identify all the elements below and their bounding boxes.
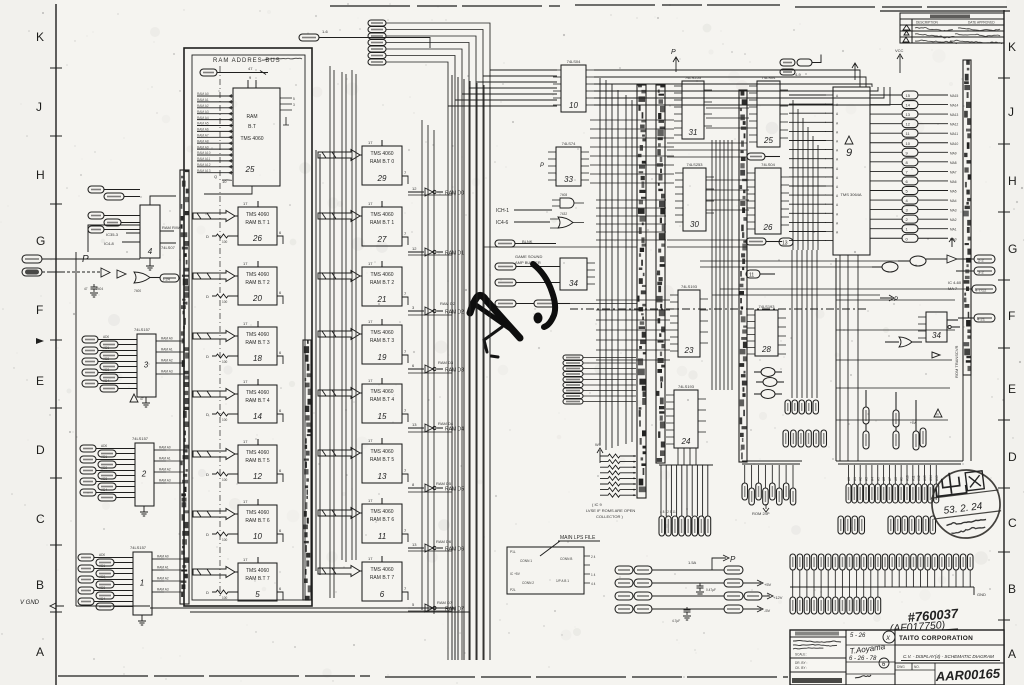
svg-text:ROM TRANSCVR: ROM TRANSCVR [954,346,959,378]
svg-text:1.5A: 1.5A [688,560,697,565]
svg-text:25: 25 [763,136,773,145]
svg-text:17: 17 [368,498,373,503]
svg-text:AD0: AD0 [103,335,109,339]
svg-text:A13: A13 [923,475,927,481]
svg-text:74LS04: 74LS04 [567,59,582,64]
svg-text:7400: 7400 [134,289,141,293]
svg-text:A9: A9 [900,477,904,481]
svg-text:AD4: AD4 [99,597,105,601]
svg-text:DR. BY :: DR. BY : [795,661,807,665]
svg-text:RAM A3: RAM A3 [159,479,171,483]
svg-text:V GND: V GND [20,600,40,606]
svg-text:A4: A4 [870,477,874,481]
svg-text:100: 100 [222,360,228,364]
svg-text:RAM D6: RAM D6 [436,539,452,544]
svg-text:MA12: MA12 [950,123,959,127]
svg-text:AD3: AD3 [101,477,107,481]
svg-text:10: 10 [253,532,262,541]
svg-text:1 4: 1 4 [591,573,596,577]
svg-text:RAM B.T 1: RAM B.T 1 [370,220,395,226]
svg-text:AD2: AD2 [99,575,105,579]
svg-text:TMS 3064A: TMS 3064A [840,192,861,197]
svg-text:RAM A1: RAM A1 [197,98,209,102]
svg-text:13: 13 [412,422,417,427]
svg-text:13: 13 [412,542,417,547]
svg-text:RAM B.T 0: RAM B.T 0 [370,159,395,165]
svg-text:47: 47 [84,287,88,291]
svg-text:Q: Q [214,174,217,179]
svg-text:+5V: +5V [910,421,917,425]
svg-text:14: 14 [253,412,262,421]
svg-text:17: 17 [243,379,248,384]
svg-text:TMS 4060: TMS 4060 [370,449,393,455]
svg-text:4.7µF: 4.7µF [672,619,680,623]
svg-text:CONN B: CONN B [560,557,572,561]
svg-text:B: B [36,578,44,592]
svg-text:1/P A B 1: 1/P A B 1 [556,579,569,583]
svg-text:3: 3 [144,361,149,370]
svg-text:RAM A13: RAM A13 [197,169,211,173]
svg-text:5: 5 [293,97,295,101]
svg-text:17: 17 [368,201,373,206]
svg-text:17: 17 [243,499,248,504]
svg-text:TMS 4060: TMS 4060 [370,151,393,157]
svg-text:RAM R/W: RAM R/W [162,225,180,230]
svg-text:DATE APPROVED: DATE APPROVED [968,21,995,25]
svg-text:K: K [36,30,44,44]
svg-text:TMS 4060: TMS 4060 [370,330,393,336]
svg-text:27: 27 [377,235,387,244]
svg-text:TMS 4060: TMS 4060 [246,212,269,218]
svg-text:2: 2 [141,470,147,479]
svg-text:RAM A0: RAM A0 [197,92,209,96]
svg-text:RAM A4: RAM A4 [197,116,209,120]
svg-text:12: 12 [906,122,911,127]
svg-text:26: 26 [252,234,262,243]
svg-text:ICH-1: ICH-1 [496,208,509,214]
svg-text:D: D [206,354,209,359]
svg-text:1: 1 [140,579,144,588]
svg-text:RAM A3: RAM A3 [157,588,169,592]
svg-text:AD0: AD0 [99,553,105,557]
svg-text:1-6: 1-6 [322,29,329,34]
svg-text:D: D [36,443,45,457]
svg-text:13: 13 [378,472,387,481]
svg-text:+12V: +12V [773,595,783,600]
svg-text:AD1: AD1 [101,455,107,459]
svg-text:34: 34 [932,331,941,340]
svg-text:RAM A0: RAM A0 [161,337,173,341]
svg-text:RAM A2: RAM A2 [157,577,169,581]
svg-text:11: 11 [378,532,386,541]
svg-text:MA8: MA8 [950,161,957,165]
svg-text:2-2: 2-2 [978,258,985,263]
svg-text:m: m [936,413,939,417]
svg-text:RAM B.T 7: RAM B.T 7 [245,576,270,582]
svg-text:10: 10 [906,141,911,146]
svg-text:AD0: AD0 [101,444,107,448]
svg-text:TMS 4060: TMS 4060 [246,450,269,456]
svg-text:A3: A3 [865,477,869,481]
svg-text:AD4: AD4 [103,379,109,383]
svg-text:47: 47 [140,397,144,401]
svg-text:D: D [206,532,209,537]
svg-text:AD4: AD4 [101,488,107,492]
svg-text:TMS 4060: TMS 4060 [370,272,393,278]
svg-text:RAM A3: RAM A3 [197,110,209,114]
svg-text:RAM A5: RAM A5 [197,122,209,126]
svg-text:13: 13 [906,112,911,117]
svg-text:AD1: AD1 [99,564,105,568]
svg-text:A0: A0 [847,477,851,481]
svg-text:E: E [1008,382,1016,396]
svg-text:B: B [1008,582,1016,596]
svg-text:IC4-8: IC4-8 [104,241,115,246]
svg-text:20: 20 [252,294,262,303]
svg-text:VCC: VCC [895,48,904,53]
svg-text:24: 24 [681,437,691,446]
svg-text:74LS07: 74LS07 [161,245,176,250]
svg-text:RAM A3: RAM A3 [161,370,173,374]
svg-text:10: 10 [569,101,578,110]
svg-text:A8: A8 [894,477,898,481]
svg-text:RAM A2: RAM A2 [159,468,171,472]
svg-text:RAM A0: RAM A0 [159,446,171,450]
svg-text:17: 17 [243,439,248,444]
svg-text:C: C [1008,516,1017,530]
svg-text:17: 17 [243,201,248,206]
svg-text:D: D [206,294,209,299]
svg-text:COLLECTOR ): COLLECTOR ) [596,514,623,519]
svg-text:74LS157: 74LS157 [130,545,147,550]
svg-text:IC 4-60: IC 4-60 [948,280,962,285]
svg-text:33: 33 [564,175,573,184]
svg-text:RAM D2: RAM D2 [440,301,456,306]
svg-text:RAM B.T 2: RAM B.T 2 [245,280,270,286]
svg-text:IC4-6: IC4-6 [496,220,508,226]
svg-text:21: 21 [377,295,387,304]
svg-text:C.V. - DISPLAY(4) - SCHEMATIC: C.V. - DISPLAY(4) - SCHEMATIC DIAGRAM [903,654,994,659]
svg-text:RAM A10: RAM A10 [197,151,211,155]
svg-text:D: D [1008,450,1017,464]
svg-text:17: 17 [368,378,373,383]
svg-text:TMS 4060: TMS 4060 [370,389,393,395]
svg-text:74LS157: 74LS157 [132,436,149,441]
svg-text:74LS193: 74LS193 [758,304,775,309]
svg-text:17: 17 [368,438,373,443]
svg-text:TMS 4060: TMS 4060 [246,390,269,396]
svg-text:D: D [206,234,209,239]
svg-text:P: P [671,49,676,56]
svg-text:D: D [206,590,209,595]
svg-text:RAM D5: RAM D5 [436,481,452,486]
svg-text:AD3: AD3 [99,586,105,590]
svg-text:74LS04: 74LS04 [762,75,777,80]
svg-text:TAITO CORPORATION: TAITO CORPORATION [899,635,973,642]
svg-text:TMS 4060: TMS 4060 [370,509,393,515]
svg-text:13: 13 [782,241,788,247]
svg-text:-5V: -5V [764,608,771,613]
svg-text:RAM A0: RAM A0 [157,555,169,559]
svg-text:RAM A2: RAM A2 [161,359,173,363]
svg-text:DWG: DWG [897,665,905,669]
svg-text:17: 17 [368,140,373,145]
svg-text:RAM B.T 5: RAM B.T 5 [370,457,395,463]
svg-text:11: 11 [749,273,754,279]
svg-text:( IC 9: ( IC 9 [592,502,603,507]
svg-text:MA2: MA2 [950,218,957,222]
svg-text:4-9: 4-9 [795,72,802,77]
svg-text:5: 5 [255,590,260,599]
svg-text:IC35-3: IC35-3 [106,232,119,237]
svg-text:IC +5V: IC +5V [510,572,521,576]
svg-text:4 4: 4 4 [591,582,596,586]
svg-text:74LS157: 74LS157 [134,327,151,332]
svg-text:A7: A7 [888,477,892,481]
svg-text:31: 31 [689,128,698,137]
svg-text:100: 100 [222,240,228,244]
svg-text:7408: 7408 [560,193,567,197]
svg-text:CONN 1: CONN 1 [520,559,532,563]
svg-text:3: 3 [293,103,295,107]
svg-text:MA4: MA4 [950,199,957,203]
svg-text:A14: A14 [929,475,933,481]
svg-text:H: H [36,168,45,182]
svg-text:6 - 26 - 78: 6 - 26 - 78 [849,656,877,662]
svg-text:4: 4 [148,247,153,256]
svg-text:AD1: AD1 [103,346,109,350]
svg-text:17: 17 [368,261,373,266]
svg-text:MA 7: MA 7 [948,286,958,291]
svg-text:C: C [36,512,45,526]
svg-text:100: 100 [222,300,228,304]
svg-text:ROM 24P: ROM 24P [752,511,770,516]
svg-text:A10: A10 [906,475,910,481]
svg-text:K: K [1008,40,1016,54]
svg-text:CONN 2: CONN 2 [522,581,534,585]
svg-text:19: 19 [378,353,387,362]
svg-text:DESCRIPTION: DESCRIPTION [916,21,938,25]
svg-text:17: 17 [368,319,373,324]
svg-text:RAM A9: RAM A9 [197,145,209,149]
svg-text:MA6: MA6 [950,180,957,184]
svg-text:P: P [894,297,898,303]
svg-text:4 8 12 5 11: 4 8 12 5 11 [660,510,676,514]
svg-text:J: J [1008,105,1014,119]
svg-text:D: D [206,412,209,417]
svg-text:7432: 7432 [560,212,567,216]
svg-text:TMS 4060: TMS 4060 [246,568,269,574]
svg-text:TMS 4060: TMS 4060 [370,567,393,573]
svg-text:RAM A1: RAM A1 [159,457,171,461]
svg-text:100: 100 [222,478,228,482]
svg-text:A6: A6 [882,477,886,481]
svg-text:18: 18 [253,354,262,363]
svg-text:A12: A12 [917,475,921,481]
svg-text:J: J [36,100,42,114]
svg-text:100: 100 [222,596,228,600]
svg-text:74LS253: 74LS253 [685,75,702,80]
svg-text:RAM D7: RAM D7 [437,600,453,605]
svg-text:TMS 4060: TMS 4060 [246,272,269,278]
svg-text:4-21: 4-21 [977,317,986,322]
svg-text:9: 9 [846,147,852,159]
svg-text:MA1: MA1 [950,228,957,232]
svg-text:74LS74: 74LS74 [562,141,577,146]
svg-text:RAM A12: RAM A12 [197,163,211,167]
svg-text:100: 100 [222,538,228,542]
svg-text:MA14: MA14 [950,104,959,108]
svg-text:26: 26 [763,223,773,232]
svg-text:AD3: AD3 [103,368,109,372]
svg-text:17: 17 [243,321,248,326]
svg-text:5 - 26: 5 - 26 [850,633,866,639]
svg-text:RAM B.T 3: RAM B.T 3 [245,340,270,346]
svg-text:P: P [540,163,544,169]
svg-text:74LS193: 74LS193 [681,284,698,289]
svg-text:H: H [1008,174,1017,188]
svg-text:15: 15 [378,412,387,421]
svg-text:17: 17 [243,557,248,562]
svg-text:MA9: MA9 [950,151,957,155]
svg-text:15: 15 [906,93,911,98]
svg-text:TMS 4060: TMS 4060 [246,332,269,338]
svg-text:GND: GND [977,592,986,597]
svg-text:4-7/12: 4-7/12 [975,288,987,293]
svg-text:RAM B.T 1: RAM B.T 1 [245,220,270,226]
svg-text:12: 12 [412,186,417,191]
svg-text:12: 12 [253,472,262,481]
svg-text:RAM B.T 4: RAM B.T 4 [245,398,270,404]
svg-text:29: 29 [377,174,387,183]
svg-text:A15: A15 [935,475,939,481]
svg-text:25: 25 [245,165,255,174]
svg-text:RAM D4: RAM D4 [438,421,454,426]
svg-text:A11: A11 [911,475,915,481]
svg-text:F: F [36,303,43,317]
svg-text:MAIN LPS FILE: MAIN LPS FILE [560,535,596,541]
svg-text:17: 17 [368,556,373,561]
svg-text:RAM A2: RAM A2 [197,104,209,108]
svg-text:E: E [36,374,44,388]
svg-text:MA5: MA5 [950,190,957,194]
svg-text:3-2: 3-2 [978,270,985,275]
svg-text:+5V: +5V [764,582,772,587]
svg-text:RAM B.T 2: RAM B.T 2 [370,280,395,286]
svg-text:RAM B.T 4: RAM B.T 4 [370,397,395,403]
svg-text:23: 23 [684,346,694,355]
svg-text:TMS 4060: TMS 4060 [246,510,269,516]
svg-text:I-24: I-24 [163,277,171,282]
svg-text:TMS 4060: TMS 4060 [240,136,263,142]
svg-text:A2: A2 [859,477,863,481]
svg-text:AD2: AD2 [101,466,107,470]
svg-text:14: 14 [906,103,911,108]
svg-text:RAM A7: RAM A7 [197,134,209,138]
svg-text:6: 6 [380,590,385,599]
svg-text:RAM B.T 6: RAM B.T 6 [245,518,270,524]
svg-text:RAM B.T 6: RAM B.T 6 [370,517,395,523]
svg-text:GAME SOUND: GAME SOUND [515,254,542,259]
svg-text:G: G [1008,242,1017,256]
svg-text:CK. BY :: CK. BY : [795,666,807,670]
svg-text:RAM A1: RAM A1 [157,566,169,570]
svg-text:MA3: MA3 [950,209,957,213]
svg-text:30: 30 [690,220,699,229]
svg-text:MA15: MA15 [950,94,959,98]
svg-text:D: D [206,472,209,477]
svg-text:A1: A1 [853,477,857,481]
svg-text:17: 17 [243,261,248,266]
svg-text:RAM B.T 3: RAM B.T 3 [370,338,395,344]
svg-text:RAM A8: RAM A8 [197,139,209,143]
svg-text:NO.: NO. [914,665,920,669]
svg-text:G: G [36,234,45,248]
svg-text:W1: W1 [595,442,602,447]
svg-text:P: P [730,555,736,564]
svg-text:RAM A11: RAM A11 [197,157,210,161]
svg-text:P1L: P1L [510,550,516,554]
svg-text:TMS 4060: TMS 4060 [370,212,393,218]
svg-text:MA13: MA13 [950,113,959,117]
svg-text:MA11: MA11 [950,132,958,136]
svg-text:0.47µF: 0.47µF [706,588,716,592]
svg-text:RAM A1: RAM A1 [161,348,173,352]
svg-text:RAM D3: RAM D3 [438,360,454,365]
svg-text:RAM B.T 5: RAM B.T 5 [245,458,270,464]
svg-text:74LS253: 74LS253 [686,162,703,167]
svg-text:RAM: RAM [246,114,257,120]
svg-text:74LS04: 74LS04 [761,162,776,167]
svg-text:RAM A6: RAM A6 [197,128,209,132]
svg-text:28: 28 [761,345,771,354]
svg-text:2 4: 2 4 [591,555,596,559]
svg-text:MA7: MA7 [950,170,957,174]
svg-text:SCALE :: SCALE : [795,653,807,657]
svg-text:A: A [1008,647,1016,661]
svg-text:AD2: AD2 [103,357,109,361]
svg-text:12: 12 [412,246,417,251]
svg-text:34: 34 [569,279,578,288]
svg-text:LVSE IF ROMS ARE OPEN: LVSE IF ROMS ARE OPEN [586,508,635,513]
svg-text:RAM B.T 7: RAM B.T 7 [370,575,395,581]
svg-text:74LS193: 74LS193 [678,384,695,389]
svg-text:A5: A5 [876,477,880,481]
svg-text:P2L: P2L [510,588,516,592]
svg-text:47: 47 [248,66,253,71]
svg-text:MA10: MA10 [950,142,959,146]
svg-text:B.T: B.T [248,124,256,130]
svg-text:A: A [36,645,44,659]
svg-text:F: F [1008,309,1015,323]
svg-text:100: 100 [222,418,228,422]
